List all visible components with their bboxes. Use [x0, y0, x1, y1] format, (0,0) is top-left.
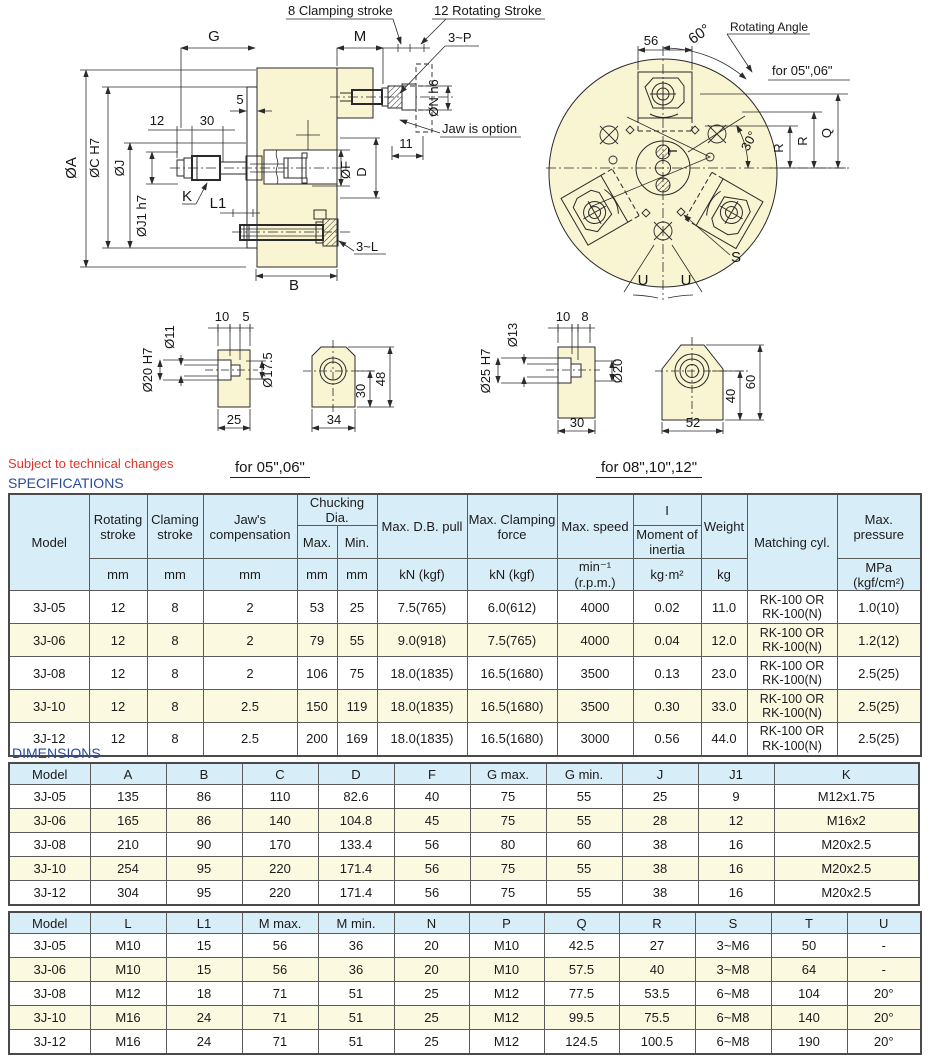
value-cell: 27 — [619, 934, 695, 958]
angle-60: 60° — [685, 21, 713, 48]
unit-cell: MPa (kgf/cm²) — [837, 559, 921, 591]
col-db-pull: Max. D.B. pull — [377, 494, 467, 559]
value-cell: RK-100 ORRK-100(N) — [747, 591, 837, 624]
column-header: Model — [9, 763, 90, 785]
dim-d: D — [354, 167, 369, 176]
for-small-sizes-label: for 05",06" — [230, 459, 310, 478]
model-cell: 3J-08 — [9, 657, 89, 690]
value-cell: 104 — [771, 982, 847, 1006]
value-cell: 36 — [318, 934, 394, 958]
dim-s: S — [731, 249, 741, 266]
col-matching-cyl: Matching cyl. — [747, 494, 837, 591]
dim-g: G — [208, 28, 220, 45]
value-cell: M10 — [90, 958, 166, 982]
value-cell: 18.0(1835) — [377, 690, 467, 723]
table-row: 3J-1230495220171.45675553816M20x2.5 — [9, 881, 919, 905]
value-cell: 56 — [242, 958, 318, 982]
table-row: 3J-0616586140104.84575552812M16x2 — [9, 809, 919, 833]
column-header: F — [394, 763, 470, 785]
value-cell: M16x2 — [774, 809, 919, 833]
for-large-sizes-label: for 08",10",12" — [596, 459, 702, 478]
value-cell: 20 — [394, 934, 469, 958]
detail-b-48: 48 — [373, 372, 388, 386]
dim-u: U — [681, 272, 692, 289]
column-header: D — [318, 763, 394, 785]
value-cell: 150 — [297, 690, 337, 723]
value-cell: 12 — [89, 657, 147, 690]
value-cell: M10 — [469, 958, 544, 982]
table-row: 3J-05128253257.5(765)6.0(612)40000.0211.… — [9, 591, 921, 624]
value-cell: 40 — [394, 785, 470, 809]
value-cell: 86 — [166, 785, 242, 809]
unit-cell: mm — [89, 559, 147, 591]
value-cell: 38 — [622, 857, 698, 881]
col-inertia-symbol: I — [633, 494, 701, 526]
detail-c-o25: Ø25 H7 — [478, 349, 493, 394]
value-cell: 20° — [847, 1030, 921, 1054]
value-cell: 104.8 — [318, 809, 394, 833]
value-cell: 15 — [166, 934, 242, 958]
value-cell: 86 — [166, 809, 242, 833]
value-cell: 7.5(765) — [467, 624, 557, 657]
value-cell: 24 — [166, 1006, 242, 1030]
value-cell: 25 — [394, 982, 469, 1006]
value-cell: 90 — [166, 833, 242, 857]
value-cell: 124.5 — [544, 1030, 619, 1054]
side-view-drawing: 8 Clamping stroke 12 Rotating Stroke 3~P… — [63, 3, 545, 294]
value-cell: 50 — [771, 934, 847, 958]
value-cell: M10 — [90, 934, 166, 958]
dim-12: 12 — [150, 113, 164, 128]
detail-small-jaw-side: 10 5 Ø11 Ø20 H7 Ø17.5 25 — [140, 309, 275, 431]
dim-56: 56 — [644, 33, 658, 48]
table-row: 3J-10M1624715125M1299.575.56~M814020° — [9, 1006, 921, 1030]
dim-oc: ØC H7 — [87, 138, 102, 178]
value-cell: 3~M8 — [695, 958, 771, 982]
dim-t: T — [665, 147, 680, 155]
column-header: M min. — [318, 912, 394, 934]
column-header: J1 — [698, 763, 774, 785]
value-cell: 0.30 — [633, 690, 701, 723]
column-header: P — [469, 912, 544, 934]
col-max-speed: Max. speed — [557, 494, 633, 559]
value-cell: 140 — [771, 1006, 847, 1030]
value-cell: 51 — [318, 1006, 394, 1030]
value-cell: 24 — [166, 1030, 242, 1054]
value-cell: 2 — [203, 591, 297, 624]
value-cell: 9 — [698, 785, 774, 809]
model-cell: 3J-06 — [9, 624, 89, 657]
value-cell: 95 — [166, 881, 242, 905]
value-cell: M20x2.5 — [774, 833, 919, 857]
value-cell: 0.02 — [633, 591, 701, 624]
dim-k: K — [182, 188, 192, 205]
value-cell: 11.0 — [701, 591, 747, 624]
value-cell: 2 — [203, 657, 297, 690]
value-cell: 38 — [622, 881, 698, 905]
value-cell: 220 — [242, 881, 318, 905]
value-cell: 2.5 — [203, 690, 297, 723]
value-cell: 71 — [242, 982, 318, 1006]
value-cell: 71 — [242, 1030, 318, 1054]
dim-5: 5 — [236, 92, 243, 107]
unit-cell: kg·m² — [633, 559, 701, 591]
dim-b: B — [289, 277, 299, 294]
col-jaws-compensation: Jaw's compensation — [203, 494, 297, 559]
value-cell: M16 — [90, 1006, 166, 1030]
value-cell: 55 — [546, 857, 622, 881]
value-cell: 75 — [337, 657, 377, 690]
unit-cell: mm — [203, 559, 297, 591]
value-cell: 55 — [546, 809, 622, 833]
value-cell: M12 — [469, 1006, 544, 1030]
value-cell: 8 — [147, 690, 203, 723]
unit-cell: mm — [337, 559, 377, 591]
column-header: B — [166, 763, 242, 785]
value-cell: 169 — [337, 723, 377, 756]
unit-cell: kN (kgf) — [467, 559, 557, 591]
detail-small-jaw-front: 30 48 34 — [303, 340, 394, 432]
detail-b-30: 30 — [353, 384, 368, 398]
detail-a-o20: Ø20 H7 — [140, 348, 155, 393]
dim-l1: L1 — [210, 195, 227, 212]
dim-oj: ØJ — [112, 160, 127, 177]
value-cell: 25 — [394, 1006, 469, 1030]
dimensions-heading: DIMENSIONS — [12, 745, 101, 761]
value-cell: M10 — [469, 934, 544, 958]
jaw-option-label: Jaw is option — [442, 121, 517, 136]
value-cell: 55 — [546, 785, 622, 809]
value-cell: 71 — [242, 1006, 318, 1030]
detail-a-o175: Ø17.5 — [260, 352, 275, 387]
value-cell: 4000 — [557, 591, 633, 624]
value-cell: 2.5 — [203, 723, 297, 756]
value-cell: 20 — [394, 958, 469, 982]
value-cell: 2 — [203, 624, 297, 657]
col-rotating-stroke: Rotating stroke — [89, 494, 147, 559]
table-row: 3J-12M1624715125M12124.5100.56~M819020° — [9, 1030, 921, 1054]
detail-b-34: 34 — [327, 412, 341, 427]
table-row: 3J-08M1218715125M1277.553.56~M810420° — [9, 982, 921, 1006]
unit-cell: kN (kgf) — [377, 559, 467, 591]
detail-a-25: 25 — [227, 412, 241, 427]
value-cell: 18.0(1835) — [377, 723, 467, 756]
value-cell: 12 — [698, 809, 774, 833]
unit-cell: kg — [701, 559, 747, 591]
value-cell: 56 — [242, 934, 318, 958]
value-cell: 55 — [546, 881, 622, 905]
dim-3p: 3~P — [448, 30, 472, 45]
value-cell: 3~M6 — [695, 934, 771, 958]
detail-c-o20: Ø20 — [610, 359, 625, 384]
dim-of: ØF — [338, 161, 353, 179]
value-cell: 110 — [242, 785, 318, 809]
value-cell: 165 — [90, 809, 166, 833]
value-cell: 45 — [394, 809, 470, 833]
unit-cell: mm — [297, 559, 337, 591]
value-cell: 0.04 — [633, 624, 701, 657]
value-cell: 6.0(612) — [467, 591, 557, 624]
value-cell: 3000 — [557, 723, 633, 756]
dim-3l: 3~L — [356, 239, 378, 254]
column-header: Model — [9, 912, 90, 934]
technical-note: Subject to technical changes — [8, 456, 174, 471]
column-header: Q — [544, 912, 619, 934]
value-cell: 18.0(1835) — [377, 657, 467, 690]
detail-a-5: 5 — [242, 309, 249, 324]
value-cell: RK-100 ORRK-100(N) — [747, 624, 837, 657]
dim-r: R — [795, 136, 810, 145]
value-cell: 42.5 — [544, 934, 619, 958]
value-cell: 99.5 — [544, 1006, 619, 1030]
detail-c-8: 8 — [581, 309, 588, 324]
detail-a-o11: Ø11 — [162, 325, 177, 349]
value-cell: 80 — [470, 833, 546, 857]
model-cell: 3J-05 — [9, 785, 90, 809]
dim-oj1: ØJ1 h7 — [134, 195, 149, 237]
value-cell: 75 — [470, 857, 546, 881]
value-cell: 25 — [337, 591, 377, 624]
detail-a-10: 10 — [215, 309, 229, 324]
value-cell: 190 — [771, 1030, 847, 1054]
value-cell: 16 — [698, 833, 774, 857]
for-small-drawing-label: for 05",06" — [772, 63, 833, 78]
detail-d-52: 52 — [686, 415, 700, 430]
column-header: U — [847, 912, 921, 934]
value-cell: 16.5(1680) — [467, 690, 557, 723]
column-header: L — [90, 912, 166, 934]
detail-c-o13: Ø13 — [505, 323, 520, 348]
value-cell: 2.5(25) — [837, 690, 921, 723]
value-cell: 8 — [147, 657, 203, 690]
dim-r: R — [771, 143, 786, 152]
value-cell: 12 — [89, 690, 147, 723]
table-row: 3J-121282.520016918.0(1835)16.5(1680)300… — [9, 723, 921, 756]
value-cell: 7.5(765) — [377, 591, 467, 624]
detail-large-jaw-front: 40 60 52 — [655, 337, 764, 434]
value-cell: 9.0(918) — [377, 624, 467, 657]
value-cell: 16 — [698, 857, 774, 881]
value-cell: 8 — [147, 591, 203, 624]
value-cell: - — [847, 934, 921, 958]
detail-d-60: 60 — [743, 375, 758, 389]
value-cell: 1.2(12) — [837, 624, 921, 657]
value-cell: M20x2.5 — [774, 881, 919, 905]
col-clamping-force: Max. Clamping force — [467, 494, 557, 559]
column-header: R — [619, 912, 695, 934]
value-cell: 18 — [166, 982, 242, 1006]
technical-drawing: 8 Clamping stroke 12 Rotating Stroke 3~P… — [0, 0, 928, 452]
detail-d-40: 40 — [723, 389, 738, 403]
unit-cell: mm — [147, 559, 203, 591]
rotating-angle-label: Rotating Angle — [730, 20, 808, 34]
specifications-heading: SPECIFICATIONS — [8, 475, 124, 491]
model-cell: 3J-10 — [9, 857, 90, 881]
value-cell: 171.4 — [318, 857, 394, 881]
dimensions-table-1: ModelABCDFG max.G min.JJ1K 3J-0513586110… — [8, 762, 920, 906]
value-cell: RK-100 ORRK-100(N) — [747, 657, 837, 690]
value-cell: 75 — [470, 881, 546, 905]
value-cell: 33.0 — [701, 690, 747, 723]
value-cell: M16 — [90, 1030, 166, 1054]
value-cell: 25 — [622, 785, 698, 809]
col-inertia: Moment of inertia — [633, 526, 701, 559]
value-cell: 51 — [318, 982, 394, 1006]
detail-c-10: 10 — [556, 309, 570, 324]
value-cell: 106 — [297, 657, 337, 690]
detail-large-jaw-side: 10 8 Ø13 Ø25 H7 Ø20 30 — [478, 309, 625, 434]
column-header: L1 — [166, 912, 242, 934]
value-cell: 200 — [297, 723, 337, 756]
value-cell: RK-100 ORRK-100(N) — [747, 723, 837, 756]
dim-on: ØN h6 — [426, 79, 441, 117]
value-cell: 16.5(1680) — [467, 657, 557, 690]
value-cell: 23.0 — [701, 657, 747, 690]
value-cell: 4000 — [557, 624, 633, 657]
column-header: S — [695, 912, 771, 934]
value-cell: 77.5 — [544, 982, 619, 1006]
table-row: 3J-1025495220171.45675553816M20x2.5 — [9, 857, 919, 881]
table-row: 3J-051358611082.6407555259M12x1.75 — [9, 785, 919, 809]
value-cell: RK-100 ORRK-100(N) — [747, 690, 837, 723]
value-cell: 6~M8 — [695, 982, 771, 1006]
value-cell: 6~M8 — [695, 1006, 771, 1030]
dim-m: M — [354, 28, 367, 45]
value-cell: 38 — [622, 833, 698, 857]
value-cell: 75 — [470, 809, 546, 833]
value-cell: 0.13 — [633, 657, 701, 690]
value-cell: 53 — [297, 591, 337, 624]
table-row: 3J-0812821067518.0(1835)16.5(1680)35000.… — [9, 657, 921, 690]
value-cell: M12 — [469, 982, 544, 1006]
value-cell: 304 — [90, 881, 166, 905]
col-chucking-dia: Chucking Dia. — [297, 494, 377, 526]
model-cell: 3J-05 — [9, 934, 90, 958]
column-header: C — [242, 763, 318, 785]
value-cell: 75.5 — [619, 1006, 695, 1030]
value-cell: 12 — [89, 624, 147, 657]
dim-oa: ØA — [63, 157, 80, 179]
value-cell: 82.6 — [318, 785, 394, 809]
front-view-drawing: 56 60° Rotating Angle for 05",06" R R Q … — [546, 20, 852, 300]
value-cell: M12x1.75 — [774, 785, 919, 809]
value-cell: 20° — [847, 1006, 921, 1030]
model-cell: 3J-10 — [9, 1006, 90, 1030]
col-model: Model — [9, 494, 89, 591]
value-cell: 8 — [147, 723, 203, 756]
value-cell: 220 — [242, 857, 318, 881]
value-cell: 210 — [90, 833, 166, 857]
value-cell: 16 — [698, 881, 774, 905]
value-cell: 60 — [546, 833, 622, 857]
value-cell: 40 — [619, 958, 695, 982]
rotating-stroke-label: 12 Rotating Stroke — [434, 3, 542, 18]
value-cell: 2.5(25) — [837, 723, 921, 756]
column-header: N — [394, 912, 469, 934]
dimensions-table-2: ModelLL1M max.M min.NPQRSTU 3J-05M101556… — [8, 911, 922, 1055]
value-cell: 56 — [394, 857, 470, 881]
value-cell: 64 — [771, 958, 847, 982]
value-cell: 53.5 — [619, 982, 695, 1006]
value-cell: 6~M8 — [695, 1030, 771, 1054]
value-cell: 44.0 — [701, 723, 747, 756]
dim-q: Q — [819, 128, 834, 138]
clamping-stroke-label: 8 Clamping stroke — [288, 3, 393, 18]
model-cell: 3J-10 — [9, 690, 89, 723]
value-cell: 12.0 — [701, 624, 747, 657]
table-row: 3J-0821090170133.45680603816M20x2.5 — [9, 833, 919, 857]
table-row: 3J-05M1015563620M1042.5273~M650- — [9, 934, 921, 958]
dim-u: U — [638, 272, 649, 289]
value-cell: 15 — [166, 958, 242, 982]
value-cell: 8 — [147, 624, 203, 657]
value-cell: M20x2.5 — [774, 857, 919, 881]
value-cell: 3500 — [557, 690, 633, 723]
value-cell: 16.5(1680) — [467, 723, 557, 756]
catalog-page: 8 Clamping stroke 12 Rotating Stroke 3~P… — [0, 0, 928, 1063]
value-cell: 0.56 — [633, 723, 701, 756]
column-header: T — [771, 912, 847, 934]
value-cell: 20° — [847, 982, 921, 1006]
value-cell: 100.5 — [619, 1030, 695, 1054]
value-cell: 3500 — [557, 657, 633, 690]
value-cell: 79 — [297, 624, 337, 657]
value-cell: 1.0(10) — [837, 591, 921, 624]
value-cell: 57.5 — [544, 958, 619, 982]
value-cell: - — [847, 958, 921, 982]
column-header: J — [622, 763, 698, 785]
value-cell: 55 — [337, 624, 377, 657]
value-cell: 95 — [166, 857, 242, 881]
model-cell: 3J-06 — [9, 958, 90, 982]
detail-c-30: 30 — [570, 415, 584, 430]
col-chucking-max: Max. — [297, 526, 337, 559]
value-cell: 51 — [318, 1030, 394, 1054]
col-max-pressure: Max. pressure — [837, 494, 921, 559]
col-weight: Weight — [701, 494, 747, 559]
value-cell: M12 — [469, 1030, 544, 1054]
table-row: 3J-101282.515011918.0(1835)16.5(1680)350… — [9, 690, 921, 723]
value-cell: 135 — [90, 785, 166, 809]
model-cell: 3J-05 — [9, 591, 89, 624]
col-chucking-min: Min. — [337, 526, 377, 559]
column-header: K — [774, 763, 919, 785]
model-cell: 3J-08 — [9, 833, 90, 857]
model-cell: 3J-08 — [9, 982, 90, 1006]
dim-11: 11 — [399, 136, 413, 151]
value-cell: 171.4 — [318, 881, 394, 905]
value-cell: 12 — [89, 591, 147, 624]
unit-cell: min⁻¹ (r.p.m.) — [557, 559, 633, 591]
specifications-table: Model Rotating stroke Claming stroke Jaw… — [8, 493, 922, 757]
value-cell: 119 — [337, 690, 377, 723]
value-cell: M12 — [90, 982, 166, 1006]
value-cell: 133.4 — [318, 833, 394, 857]
value-cell: 140 — [242, 809, 318, 833]
value-cell: 170 — [242, 833, 318, 857]
model-cell: 3J-06 — [9, 809, 90, 833]
value-cell: 56 — [394, 881, 470, 905]
value-cell: 254 — [90, 857, 166, 881]
value-cell: 56 — [394, 833, 470, 857]
value-cell: 2.5(25) — [837, 657, 921, 690]
column-header: A — [90, 763, 166, 785]
value-cell: 28 — [622, 809, 698, 833]
column-header: G min. — [546, 763, 622, 785]
value-cell: 36 — [318, 958, 394, 982]
value-cell: 75 — [470, 785, 546, 809]
column-header: G max. — [470, 763, 546, 785]
